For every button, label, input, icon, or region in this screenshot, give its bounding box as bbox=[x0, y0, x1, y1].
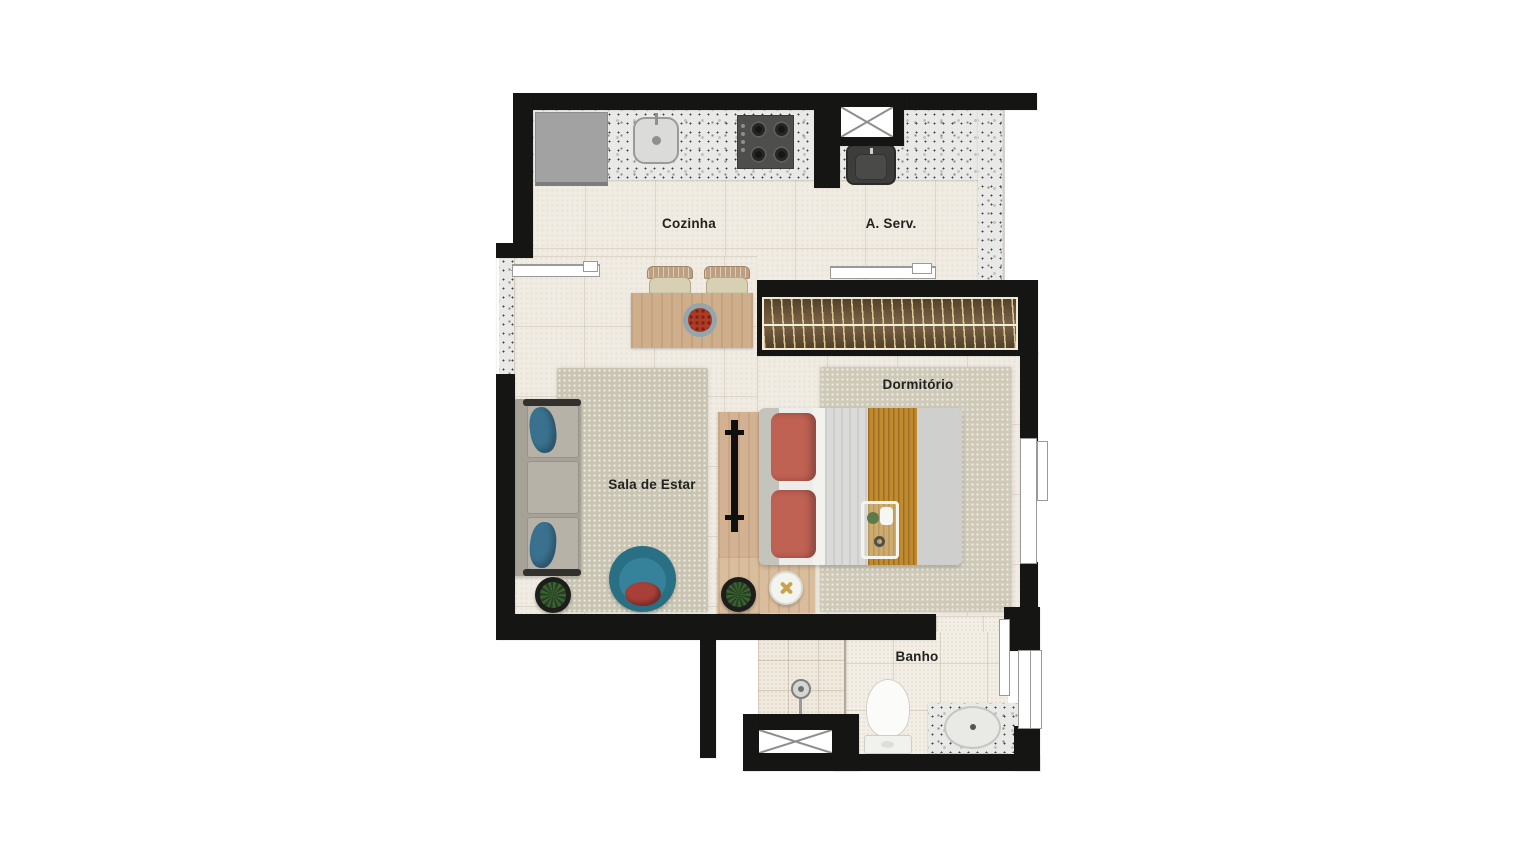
kitchen-sink bbox=[633, 117, 679, 164]
wall-bath-right-bottom bbox=[1014, 726, 1040, 771]
stove-knob bbox=[741, 132, 745, 136]
room-label-banho: Banho bbox=[857, 649, 977, 664]
sink-drain bbox=[652, 136, 661, 145]
cooktop bbox=[737, 115, 794, 169]
shaft-x-icon bbox=[759, 730, 832, 753]
window-mullion bbox=[1030, 651, 1031, 728]
plant-pot bbox=[721, 577, 756, 612]
tray-ring bbox=[874, 536, 885, 547]
breakfast-tray bbox=[861, 501, 899, 559]
basin-drain bbox=[970, 724, 976, 730]
stove-knob bbox=[741, 124, 745, 128]
room-label-dormitorio: Dormitório bbox=[838, 377, 998, 392]
wall-bath-bottom bbox=[743, 754, 1040, 771]
wall-left-step bbox=[496, 243, 533, 258]
laundry-tank bbox=[846, 144, 896, 185]
decor-plate bbox=[769, 571, 803, 605]
decor-bowl-contents bbox=[688, 308, 712, 332]
plant-pot bbox=[535, 577, 571, 613]
tv-stand bbox=[725, 515, 744, 520]
stove-knob bbox=[741, 140, 745, 144]
entry-door-handle bbox=[583, 261, 598, 272]
armchair-cushion bbox=[625, 582, 661, 606]
service-side-counter bbox=[978, 110, 1002, 280]
bedroom-window-sash bbox=[1037, 441, 1048, 501]
wall-bath-left bbox=[700, 614, 716, 758]
burner bbox=[773, 146, 790, 163]
burner bbox=[750, 121, 767, 138]
floor-shower bbox=[758, 630, 846, 716]
burner bbox=[773, 121, 790, 138]
plant-leaves bbox=[540, 582, 565, 607]
room-label-aserv: A. Serv. bbox=[831, 216, 951, 231]
sofa-arm bbox=[523, 399, 581, 406]
wall-top bbox=[513, 93, 1037, 110]
floor-bath-doorway bbox=[936, 616, 1004, 632]
stove-knob bbox=[741, 148, 745, 152]
bed-duvet-end bbox=[917, 408, 962, 565]
wall-living-left bbox=[496, 374, 515, 637]
bathroom-window bbox=[1018, 650, 1042, 729]
shower-valve bbox=[791, 679, 811, 699]
tank-basin bbox=[855, 154, 887, 180]
plant-leaves bbox=[726, 582, 751, 607]
service-outer-line bbox=[1003, 110, 1005, 280]
wardrobe-closet bbox=[762, 297, 1018, 350]
shaft-x-icon bbox=[841, 107, 893, 137]
double-bed bbox=[759, 408, 962, 565]
shaft-duct bbox=[838, 104, 896, 140]
valve-handle bbox=[798, 686, 804, 692]
decor-bowl bbox=[683, 303, 717, 337]
bed-pillow bbox=[771, 490, 816, 558]
toilet-flush bbox=[881, 741, 894, 748]
wall-kitchen-service-divider bbox=[814, 108, 840, 188]
tray-cloth bbox=[880, 507, 893, 525]
sofa-arm bbox=[523, 569, 581, 576]
burner bbox=[750, 146, 767, 163]
wall-kitchen-left bbox=[513, 93, 533, 246]
bedroom-window-sash bbox=[1020, 438, 1037, 564]
shower-screen-line bbox=[844, 630, 846, 716]
toilet bbox=[866, 679, 910, 737]
bed-pillow bbox=[771, 413, 816, 481]
room-label-sala: Sala de Estar bbox=[572, 477, 732, 492]
tv-stand bbox=[725, 430, 744, 435]
wall-bottom-main bbox=[496, 614, 936, 640]
floor-plan-canvas: Cozinha A. Serv. Sala de Estar Dormitóri… bbox=[0, 0, 1536, 864]
sink-faucet bbox=[655, 113, 658, 125]
bathroom-door-leaf bbox=[999, 619, 1010, 696]
toilet-tank bbox=[864, 735, 912, 754]
wardrobe-rod bbox=[764, 324, 1016, 326]
shaft-duct bbox=[757, 728, 834, 755]
fridge bbox=[535, 112, 608, 186]
room-label-cozinha: Cozinha bbox=[629, 216, 749, 231]
bathroom-sink bbox=[944, 706, 1001, 749]
pass-through-handle bbox=[912, 263, 932, 274]
armchair bbox=[609, 546, 676, 612]
tray-plant bbox=[867, 512, 879, 524]
wall-bedroom-right-upper bbox=[1020, 350, 1038, 442]
